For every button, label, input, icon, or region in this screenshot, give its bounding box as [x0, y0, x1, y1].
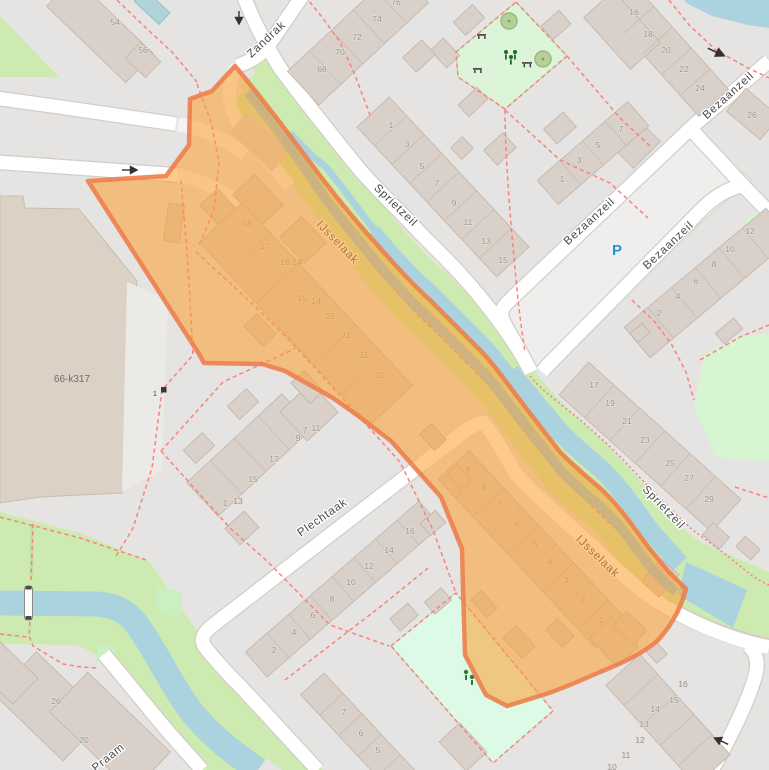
- svg-text:10: 10: [346, 577, 356, 587]
- svg-text:9: 9: [452, 198, 457, 208]
- svg-text:15: 15: [498, 255, 508, 265]
- svg-text:68: 68: [317, 64, 327, 74]
- svg-text:10: 10: [725, 244, 735, 254]
- svg-text:1: 1: [153, 391, 157, 398]
- svg-text:13: 13: [481, 236, 491, 246]
- svg-text:12: 12: [364, 561, 374, 571]
- svg-text:16: 16: [629, 7, 639, 17]
- svg-text:66-k317: 66-k317: [54, 374, 91, 385]
- svg-text:1: 1: [223, 498, 228, 508]
- svg-text:7: 7: [342, 707, 347, 717]
- svg-text:25: 25: [665, 458, 675, 468]
- svg-text:56: 56: [138, 45, 148, 55]
- svg-text:16: 16: [678, 679, 688, 689]
- svg-text:5: 5: [376, 745, 381, 755]
- svg-text:21: 21: [622, 416, 632, 426]
- svg-text:26: 26: [51, 696, 61, 706]
- svg-text:P: P: [612, 242, 622, 259]
- svg-text:13: 13: [233, 496, 243, 506]
- svg-text:8: 8: [330, 594, 335, 604]
- svg-text:54: 54: [110, 17, 120, 27]
- svg-text:11: 11: [622, 750, 631, 760]
- svg-text:2: 2: [272, 645, 277, 655]
- svg-text:17: 17: [269, 454, 279, 464]
- svg-text:6: 6: [359, 728, 364, 738]
- svg-text:16: 16: [405, 526, 415, 536]
- svg-text:9: 9: [296, 433, 301, 443]
- svg-text:24: 24: [695, 83, 705, 93]
- svg-text:70: 70: [335, 47, 345, 57]
- svg-text:27: 27: [684, 473, 694, 483]
- svg-text:12: 12: [635, 735, 645, 745]
- svg-text:20: 20: [79, 735, 89, 745]
- svg-text:2: 2: [657, 308, 662, 318]
- svg-text:3: 3: [577, 155, 582, 165]
- svg-text:17: 17: [589, 380, 599, 390]
- svg-text:29: 29: [704, 494, 714, 504]
- svg-text:8: 8: [712, 259, 717, 269]
- svg-text:6: 6: [311, 610, 316, 620]
- svg-text:4: 4: [676, 291, 681, 301]
- svg-text:72: 72: [352, 32, 362, 42]
- svg-text:6: 6: [694, 276, 699, 286]
- svg-text:19: 19: [605, 398, 615, 408]
- svg-text:23: 23: [640, 435, 650, 445]
- svg-text:26: 26: [747, 110, 757, 120]
- svg-text:3: 3: [405, 139, 410, 149]
- svg-text:7: 7: [619, 124, 624, 134]
- svg-text:10: 10: [607, 762, 617, 770]
- svg-text:74: 74: [372, 14, 382, 24]
- svg-text:7: 7: [435, 178, 440, 188]
- svg-text:15: 15: [669, 695, 679, 705]
- svg-text:15: 15: [248, 474, 258, 484]
- svg-text:5: 5: [596, 140, 601, 150]
- svg-text:14: 14: [384, 545, 394, 555]
- svg-text:20: 20: [661, 45, 671, 55]
- svg-text:13: 13: [639, 719, 649, 729]
- svg-text:5: 5: [420, 161, 425, 171]
- svg-text:7: 7: [303, 425, 308, 435]
- svg-text:14: 14: [650, 704, 660, 714]
- svg-text:4: 4: [292, 627, 297, 637]
- svg-text:76: 76: [391, 0, 401, 7]
- svg-text:11: 11: [464, 217, 473, 227]
- svg-text:22: 22: [679, 64, 689, 74]
- svg-text:18: 18: [643, 29, 653, 39]
- svg-text:1: 1: [389, 120, 394, 130]
- svg-text:1: 1: [560, 174, 565, 184]
- svg-text:12: 12: [745, 226, 755, 236]
- svg-text:11: 11: [312, 423, 321, 433]
